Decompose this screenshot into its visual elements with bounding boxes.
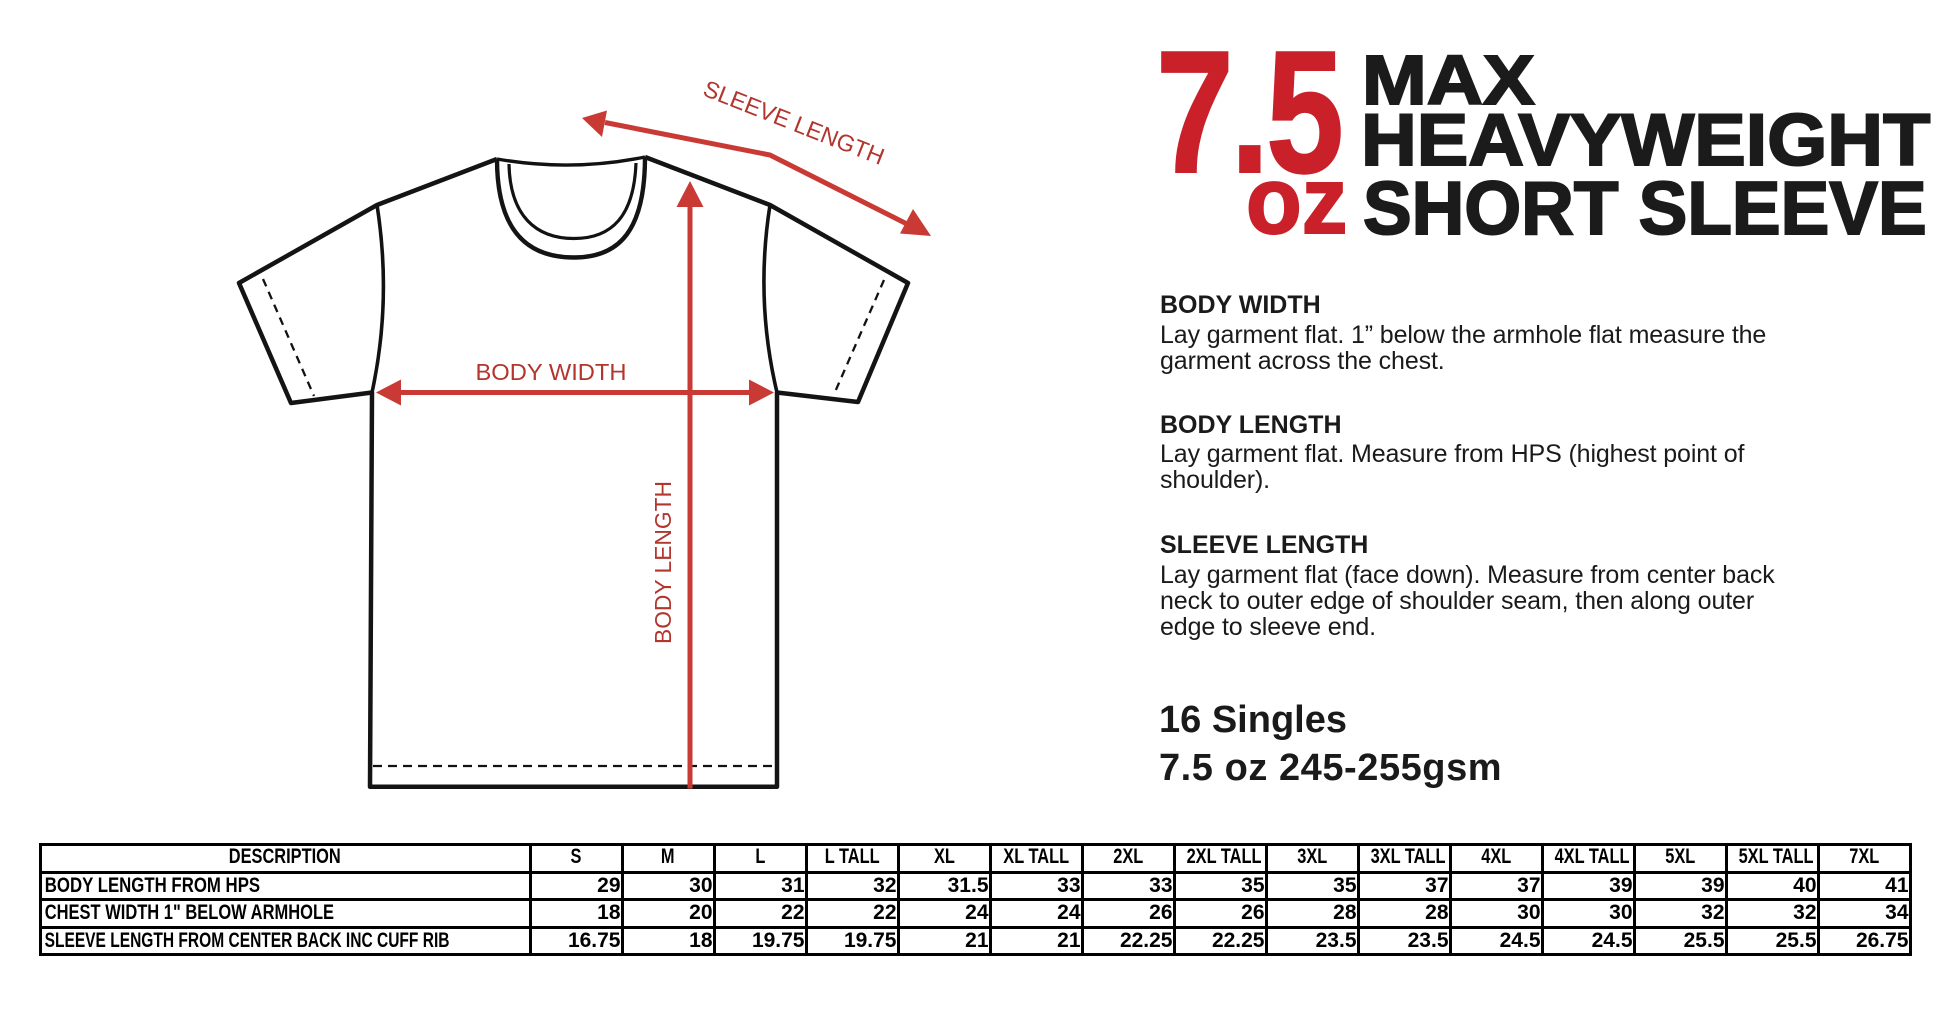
svg-text:BODY LENGTH: BODY LENGTH [650, 481, 676, 644]
svg-text:BODY WIDTH: BODY WIDTH [476, 359, 627, 385]
svg-text:SLEEVE LENGTH: SLEEVE LENGTH [700, 75, 888, 170]
